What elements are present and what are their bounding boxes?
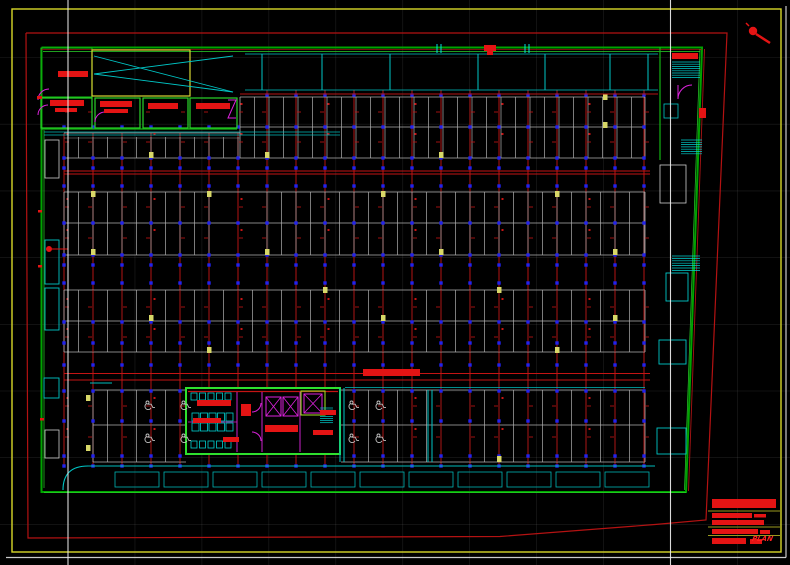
construction-lines (68, 0, 671, 565)
floor-plan-drawing (0, 0, 790, 565)
grid-layer (0, 0, 790, 565)
plan-type-label: PLAN (751, 535, 774, 543)
parking-field (62, 90, 650, 468)
north-arrow-icon (746, 23, 770, 43)
cad-viewport[interactable]: PLAN (0, 0, 790, 565)
